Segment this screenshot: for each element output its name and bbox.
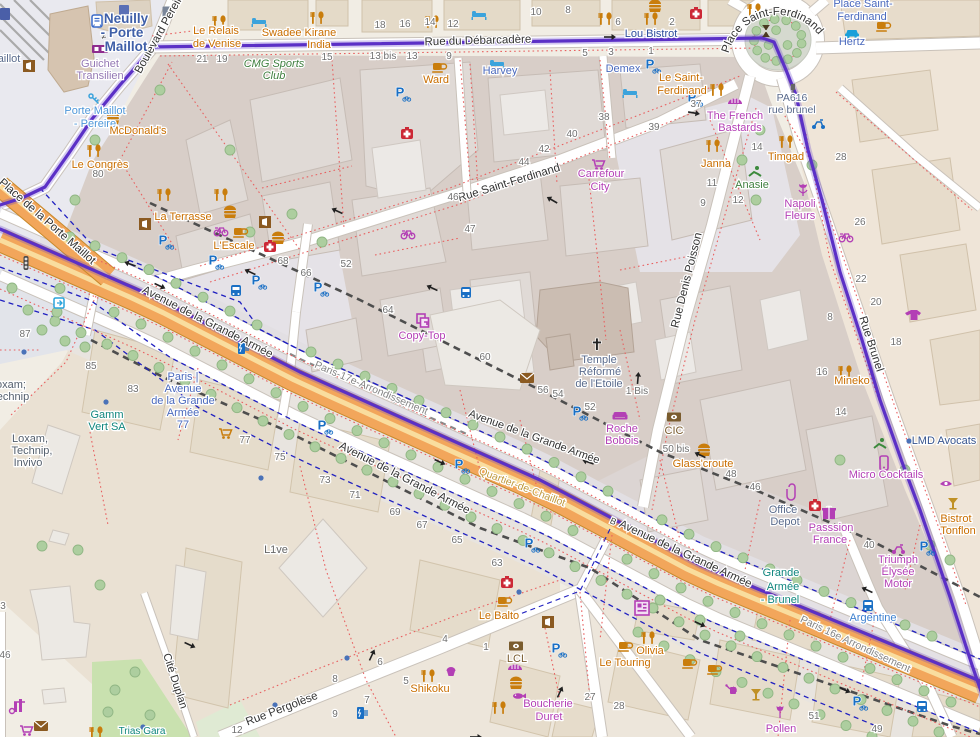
svg-text:Gamm: Gamm bbox=[91, 409, 124, 421]
svg-text:Passsion: Passsion bbox=[809, 522, 854, 534]
svg-text:Anasie: Anasie bbox=[735, 179, 769, 191]
svg-text:12: 12 bbox=[231, 725, 243, 736]
svg-text:1: 1 bbox=[648, 46, 654, 57]
svg-text:P: P bbox=[252, 273, 261, 288]
svg-text:de la Grande: de la Grande bbox=[151, 395, 215, 407]
svg-text:13 bis: 13 bis bbox=[370, 51, 397, 62]
svg-text:12: 12 bbox=[732, 195, 744, 206]
svg-text:Fleurs: Fleurs bbox=[785, 210, 816, 222]
svg-text:Vert SA: Vert SA bbox=[88, 421, 126, 433]
svg-text:Timgad: Timgad bbox=[768, 151, 804, 163]
svg-text:12: 12 bbox=[447, 19, 459, 30]
svg-text:Depot: Depot bbox=[770, 516, 799, 528]
svg-text:9: 9 bbox=[332, 709, 338, 720]
svg-text:L'Escale: L'Escale bbox=[213, 240, 254, 252]
svg-text:46: 46 bbox=[447, 192, 459, 203]
svg-text:18: 18 bbox=[374, 20, 386, 31]
svg-text:Temple: Temple bbox=[581, 354, 616, 366]
svg-text:Swadee Kirane: Swadee Kirane bbox=[262, 27, 337, 39]
svg-text:L1ve: L1ve bbox=[264, 544, 288, 556]
svg-text:Hertz: Hertz bbox=[839, 36, 865, 48]
svg-text:8: 8 bbox=[827, 312, 833, 323]
svg-text:Carrefour: Carrefour bbox=[578, 168, 625, 180]
svg-text:52: 52 bbox=[584, 402, 596, 413]
svg-text:Napoli: Napoli bbox=[784, 198, 815, 210]
svg-text:Olivia: Olivia bbox=[636, 645, 664, 657]
svg-text:51: 51 bbox=[808, 711, 820, 722]
svg-text:2: 2 bbox=[669, 17, 675, 28]
svg-text:Ferdinand: Ferdinand bbox=[657, 85, 707, 97]
svg-text:60: 60 bbox=[479, 352, 491, 363]
svg-text:1 Bis: 1 Bis bbox=[626, 386, 648, 397]
svg-text:Pollen: Pollen bbox=[766, 723, 797, 735]
svg-text:P: P bbox=[159, 233, 168, 248]
svg-text:26: 26 bbox=[854, 217, 866, 228]
svg-text:Lou Bistrot: Lou Bistrot bbox=[625, 28, 678, 40]
svg-text:37: 37 bbox=[690, 99, 702, 110]
svg-text:P: P bbox=[853, 694, 862, 709]
svg-text:13: 13 bbox=[406, 51, 418, 62]
svg-text:Élysée: Élysée bbox=[881, 565, 914, 578]
svg-text:✝: ✝ bbox=[590, 337, 603, 354]
svg-text:P: P bbox=[314, 280, 323, 295]
svg-text:66: 66 bbox=[300, 268, 312, 279]
svg-text:McDonald's: McDonald's bbox=[109, 125, 167, 137]
svg-text:Armée: Armée bbox=[767, 581, 799, 593]
svg-text:65: 65 bbox=[451, 535, 463, 546]
svg-text:9: 9 bbox=[700, 198, 706, 209]
svg-text:38: 38 bbox=[598, 112, 610, 123]
svg-text:La Terrasse: La Terrasse bbox=[154, 211, 211, 223]
svg-text:40: 40 bbox=[863, 540, 875, 551]
svg-text:44: 44 bbox=[518, 157, 530, 168]
svg-text:PA616: PA616 bbox=[777, 92, 808, 104]
svg-text:67: 67 bbox=[416, 520, 428, 531]
svg-text:France: France bbox=[813, 534, 847, 546]
svg-text:47: 47 bbox=[464, 224, 476, 235]
svg-text:rue brunel: rue brunel bbox=[768, 104, 815, 116]
svg-text:16: 16 bbox=[399, 19, 411, 30]
svg-text:8: 8 bbox=[332, 674, 338, 685]
svg-text:Boucherie: Boucherie bbox=[523, 698, 573, 710]
svg-text:68: 68 bbox=[277, 256, 289, 267]
svg-text:Avenue: Avenue bbox=[164, 383, 201, 395]
svg-text:Office: Office bbox=[769, 504, 798, 516]
svg-text:6: 6 bbox=[377, 657, 383, 668]
svg-text:11: 11 bbox=[707, 178, 718, 189]
svg-text:4: 4 bbox=[442, 634, 448, 645]
svg-text:P: P bbox=[525, 536, 534, 551]
svg-text:Ferdinand: Ferdinand bbox=[837, 11, 887, 23]
svg-text:14: 14 bbox=[835, 407, 847, 418]
svg-text:3: 3 bbox=[608, 47, 614, 58]
svg-text:8: 8 bbox=[565, 5, 571, 16]
svg-text:aillot: aillot bbox=[0, 53, 20, 65]
svg-text:28: 28 bbox=[835, 152, 847, 163]
svg-text:39: 39 bbox=[648, 122, 660, 133]
svg-text:22: 22 bbox=[855, 274, 867, 285]
svg-text:Guichet: Guichet bbox=[81, 58, 119, 70]
svg-text:15: 15 bbox=[321, 52, 333, 63]
svg-text:P: P bbox=[573, 404, 582, 419]
svg-text:7: 7 bbox=[364, 695, 370, 706]
svg-text:46: 46 bbox=[749, 482, 761, 493]
svg-text:Réformé: Réformé bbox=[579, 366, 621, 378]
svg-text:49: 49 bbox=[871, 724, 883, 735]
svg-text:50 bis: 50 bis bbox=[663, 444, 690, 455]
svg-text:40: 40 bbox=[566, 129, 578, 140]
svg-text:48: 48 bbox=[725, 469, 737, 480]
svg-text:CMG Sports: CMG Sports bbox=[244, 58, 305, 70]
svg-text:LCL: LCL bbox=[507, 653, 527, 665]
svg-text:Le Relais: Le Relais bbox=[193, 25, 239, 37]
svg-text:- Brunel: - Brunel bbox=[761, 594, 800, 606]
svg-text:Demex: Demex bbox=[606, 63, 641, 75]
svg-text:20: 20 bbox=[870, 297, 882, 308]
svg-text:Transilien: Transilien bbox=[76, 70, 123, 82]
svg-text:Shikoku: Shikoku bbox=[410, 683, 449, 695]
svg-text:Bastards: Bastards bbox=[718, 122, 762, 134]
svg-text:69: 69 bbox=[389, 507, 401, 518]
svg-text:Glass'croute: Glass'croute bbox=[673, 458, 734, 470]
svg-text:P: P bbox=[455, 457, 464, 472]
svg-text:P: P bbox=[646, 57, 655, 72]
svg-text:Club: Club bbox=[263, 70, 286, 82]
svg-text:P: P bbox=[552, 641, 561, 656]
svg-text:P: P bbox=[396, 85, 405, 100]
svg-text:Porte Maillot: Porte Maillot bbox=[64, 105, 125, 117]
svg-text:LMD Avocats: LMD Avocats bbox=[912, 435, 977, 447]
svg-text:46: 46 bbox=[0, 650, 11, 661]
svg-text:Micro Cocktails: Micro Cocktails bbox=[849, 469, 924, 481]
svg-text:CIC: CIC bbox=[665, 425, 684, 437]
svg-text:83: 83 bbox=[127, 384, 139, 395]
svg-text:Tonflon: Tonflon bbox=[940, 525, 975, 537]
svg-text:3: 3 bbox=[0, 601, 6, 612]
svg-text:Paris |: Paris | bbox=[168, 371, 199, 383]
svg-text:6: 6 bbox=[615, 17, 621, 28]
svg-text:19: 19 bbox=[216, 54, 228, 65]
svg-text:- Porte: - Porte bbox=[101, 25, 144, 40]
svg-text:P: P bbox=[920, 539, 929, 554]
svg-text:Trias Gara: Trias Gara bbox=[119, 726, 166, 737]
svg-text:Place Saint-: Place Saint- bbox=[833, 0, 893, 10]
svg-text:54: 54 bbox=[552, 389, 564, 400]
svg-text:9: 9 bbox=[446, 51, 452, 62]
svg-text:5: 5 bbox=[582, 48, 588, 59]
svg-text:16: 16 bbox=[816, 367, 828, 378]
svg-text:de Venise: de Venise bbox=[193, 38, 241, 50]
svg-text:52: 52 bbox=[340, 259, 352, 270]
svg-text:de l'Etoile: de l'Etoile bbox=[575, 378, 622, 390]
svg-text:85: 85 bbox=[85, 361, 97, 372]
svg-text:71: 71 bbox=[349, 490, 361, 501]
svg-text:Grande: Grande bbox=[763, 567, 800, 579]
svg-text:Harvey: Harvey bbox=[483, 65, 518, 77]
svg-text:73: 73 bbox=[319, 475, 331, 486]
svg-text:Copy-Top: Copy-Top bbox=[398, 330, 445, 342]
svg-text:Bobois: Bobois bbox=[605, 435, 639, 447]
svg-text:Technip,: Technip, bbox=[12, 445, 53, 457]
svg-text:64: 64 bbox=[382, 305, 394, 316]
svg-text:77: 77 bbox=[177, 419, 189, 431]
svg-text:21: 21 bbox=[196, 54, 208, 65]
svg-text:oxam;: oxam; bbox=[0, 379, 26, 391]
svg-text:Le Saint-: Le Saint- bbox=[659, 72, 703, 84]
svg-text:Ward: Ward bbox=[423, 74, 449, 86]
svg-text:Motor: Motor bbox=[884, 578, 912, 590]
svg-text:10: 10 bbox=[530, 7, 542, 18]
svg-text:80: 80 bbox=[92, 169, 104, 180]
svg-text:Armée: Armée bbox=[167, 407, 199, 419]
svg-text:The French: The French bbox=[707, 110, 763, 122]
svg-text:27: 27 bbox=[584, 692, 596, 703]
svg-text:Mineko: Mineko bbox=[834, 375, 869, 387]
svg-text:63: 63 bbox=[491, 558, 503, 569]
svg-text:18: 18 bbox=[890, 337, 902, 348]
svg-text:87: 87 bbox=[19, 329, 31, 340]
svg-text:28: 28 bbox=[613, 701, 625, 712]
svg-text:42: 42 bbox=[538, 144, 550, 155]
svg-text:5: 5 bbox=[403, 676, 409, 687]
svg-text:14: 14 bbox=[424, 17, 436, 28]
svg-text:Loxam,: Loxam, bbox=[12, 433, 48, 445]
svg-text:77: 77 bbox=[239, 435, 251, 446]
svg-text:Neuilly: Neuilly bbox=[104, 11, 149, 26]
svg-text:India: India bbox=[307, 39, 332, 51]
svg-text:Le Touring: Le Touring bbox=[599, 657, 650, 669]
svg-text:Roche: Roche bbox=[606, 423, 638, 435]
svg-text:56: 56 bbox=[537, 385, 549, 396]
svg-text:14: 14 bbox=[751, 142, 763, 153]
svg-text:75: 75 bbox=[274, 452, 286, 463]
svg-text:Bistrot: Bistrot bbox=[940, 513, 971, 525]
svg-text:Duret: Duret bbox=[536, 711, 563, 723]
svg-text:Le Balto: Le Balto bbox=[479, 610, 519, 622]
svg-text:echnip: echnip bbox=[0, 391, 29, 403]
svg-text:P: P bbox=[318, 418, 327, 433]
svg-text:1: 1 bbox=[483, 642, 489, 653]
svg-text:Triumph: Triumph bbox=[878, 554, 918, 566]
svg-text:P: P bbox=[209, 253, 218, 268]
svg-text:Maillot: Maillot bbox=[105, 39, 148, 54]
svg-text:Janna: Janna bbox=[701, 158, 732, 170]
svg-text:Argentine: Argentine bbox=[849, 612, 896, 624]
svg-text:City: City bbox=[591, 181, 610, 193]
svg-text:Invivo: Invivo bbox=[14, 457, 43, 469]
